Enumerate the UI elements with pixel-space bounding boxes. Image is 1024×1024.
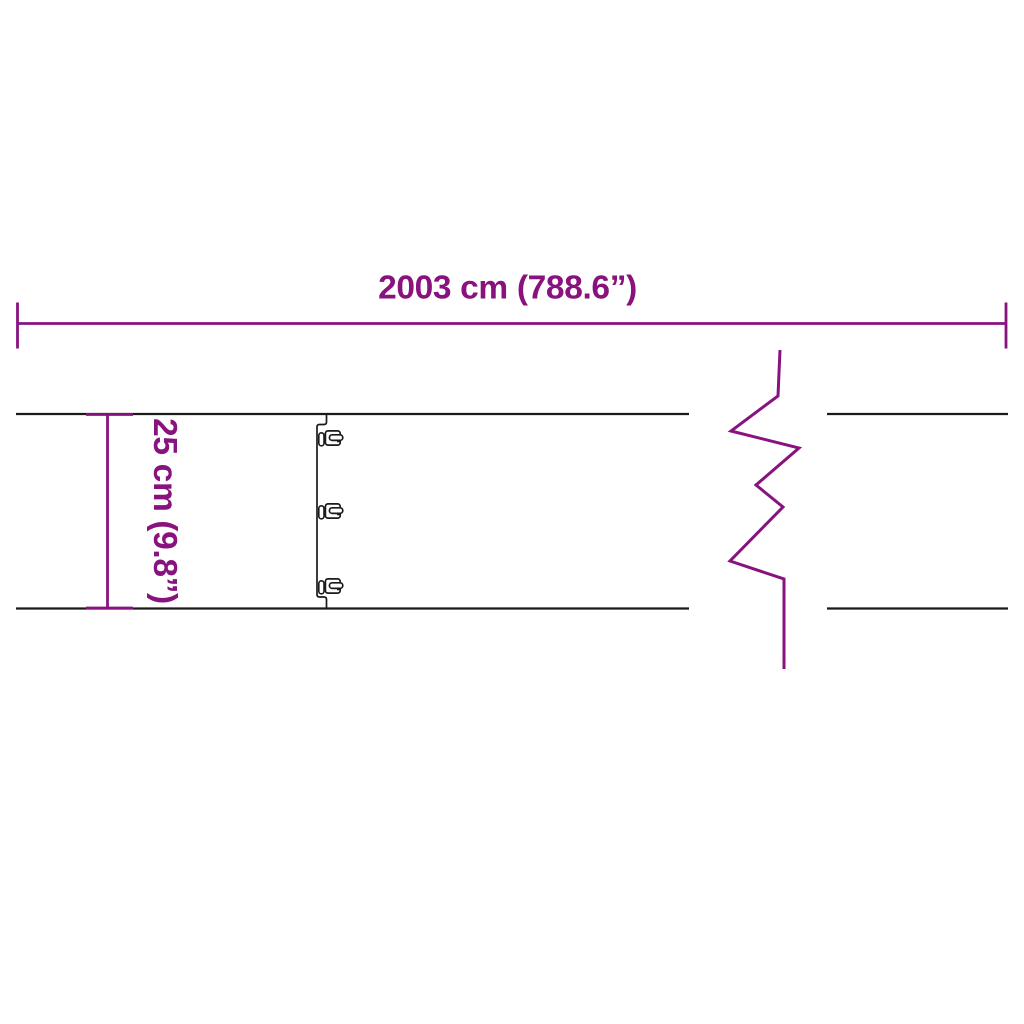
svg-text:25 cm (9.8”): 25 cm (9.8”) <box>146 418 183 604</box>
svg-text:2003 cm (788.6”): 2003 cm (788.6”) <box>378 269 637 306</box>
